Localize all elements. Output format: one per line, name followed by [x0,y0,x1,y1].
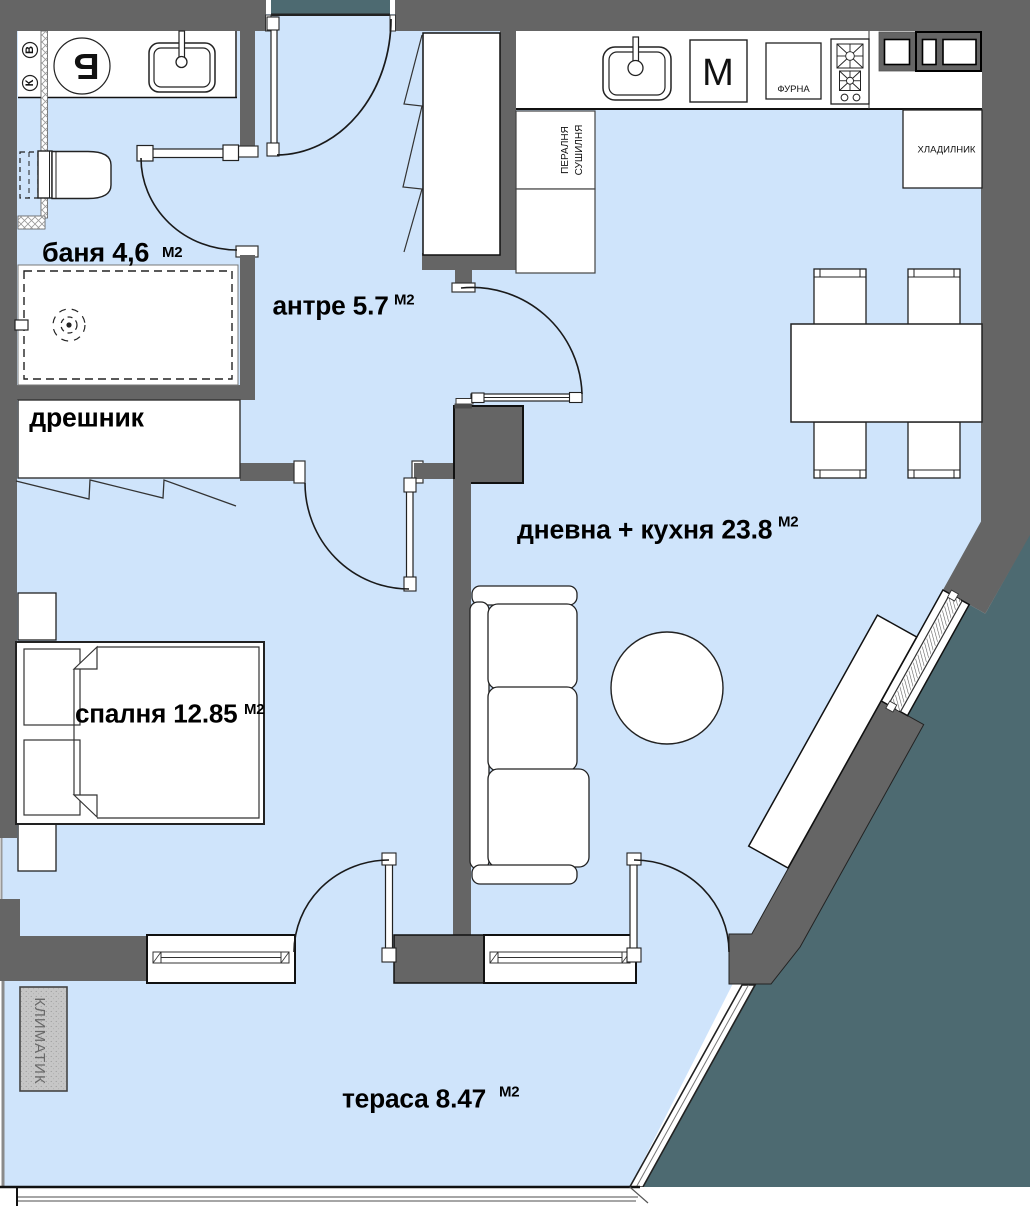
svg-text:М2: М2 [244,701,264,718]
svg-text:В: В [24,46,36,54]
svg-text:дрешник: дрешник [29,403,144,433]
svg-text:ФУРНА: ФУРНА [777,84,810,95]
svg-text:спалня 12.85: спалня 12.85 [75,699,238,729]
svg-text:М2: М2 [499,1084,519,1101]
svg-text:М2: М2 [778,514,798,531]
svg-text:ХЛАДИЛНИК: ХЛАДИЛНИК [918,145,976,156]
svg-text:Б: Б [74,46,100,87]
svg-text:М2: М2 [162,244,182,261]
svg-text:СУШИЛНЯ: СУШИЛНЯ [574,125,585,176]
svg-text:М2: М2 [394,292,414,309]
svg-text:К: К [24,79,36,86]
svg-text:ПЕРАЛНЯ: ПЕРАЛНЯ [560,126,571,174]
svg-text:тераса 8.47: тераса 8.47 [342,1084,486,1114]
svg-text:антре 5.7: антре 5.7 [273,291,389,321]
svg-text:М: М [702,52,734,94]
svg-text:дневна + кухня 23.8: дневна + кухня 23.8 [517,515,772,545]
svg-text:баня 4,6: баня 4,6 [42,238,149,268]
svg-text:КЛИМАТИК: КЛИМАТИК [31,997,48,1084]
